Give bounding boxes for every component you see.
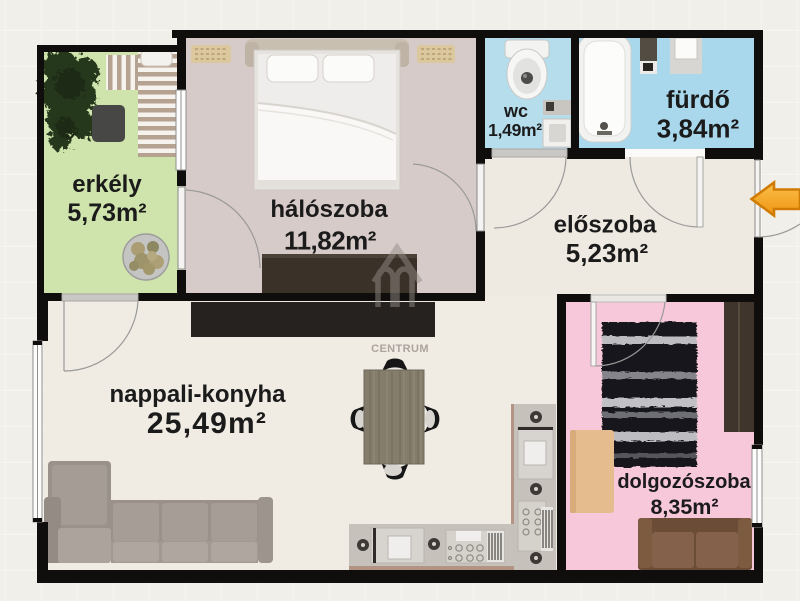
svg-text:25,49m²: 25,49m² — [147, 407, 267, 440]
svg-text:5,23m²: 5,23m² — [566, 238, 649, 268]
svg-text:3,84m²: 3,84m² — [657, 114, 740, 144]
svg-text:előszoba: előszoba — [554, 212, 657, 239]
svg-text:erkély: erkély — [72, 171, 142, 198]
svg-text:fürdő: fürdő — [666, 86, 730, 114]
svg-text:nappali-konyha: nappali-konyha — [109, 381, 286, 408]
svg-text:8,35m²: 8,35m² — [650, 495, 718, 519]
svg-text:wc: wc — [503, 101, 528, 121]
svg-text:hálószoba: hálószoba — [270, 196, 388, 223]
svg-text:5,73m²: 5,73m² — [67, 199, 146, 227]
svg-text:dolgozószoba: dolgozószoba — [617, 471, 751, 493]
svg-text:1,49m²: 1,49m² — [488, 120, 542, 140]
svg-text:CENTRUM: CENTRUM — [371, 343, 429, 355]
svg-text:11,82m²: 11,82m² — [284, 226, 377, 256]
